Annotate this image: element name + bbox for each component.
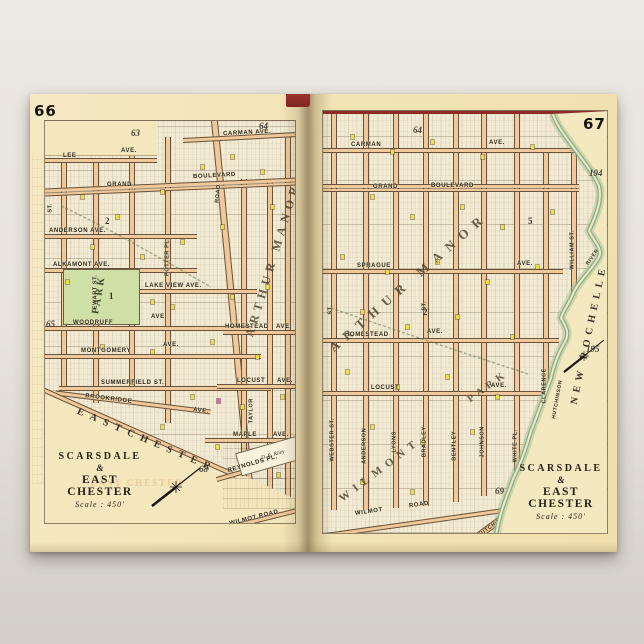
street-label-locust: LOCUST (371, 385, 399, 391)
street-label-grand: GRAND (107, 182, 132, 188)
building-marker (141, 255, 144, 259)
street-label-clarence: CLARENCE (542, 354, 548, 418)
street-label-st: ST. (48, 176, 54, 240)
street-label-ewart: EWART ST. (93, 260, 99, 324)
title-ampersand: & (51, 463, 149, 473)
street-label-bradley: BRADLEY (422, 410, 428, 474)
building-marker (161, 425, 164, 429)
page-margin-bleed (32, 154, 43, 484)
block-number: 2 (423, 307, 428, 317)
building-marker-brick (217, 399, 220, 403)
building-marker (241, 405, 244, 409)
street-label-sprague-ave: AVE. (517, 261, 533, 267)
map-plate-left: PARK 1 (44, 120, 296, 524)
building-marker (66, 280, 69, 284)
title-east-chester: EAST CHESTER (51, 474, 149, 498)
street-label-carman: CARMAN (351, 142, 381, 148)
building-marker (81, 195, 84, 199)
street-label-bentley: BENTLEY (452, 414, 458, 478)
plate-ref-64: 64 (259, 121, 268, 131)
title-ampersand: & (509, 475, 608, 485)
street-label-anderson: ANDERSON AVE. (49, 228, 106, 234)
building-marker (256, 355, 259, 359)
plate-ref-69: 69 (495, 486, 504, 496)
street-label-lyons: LYONS (392, 410, 398, 474)
title-scarsdale: SCARSDALE (509, 463, 608, 474)
street-label-anderson: ANDERSON (362, 414, 368, 478)
building-marker (261, 170, 264, 174)
building-marker (171, 305, 174, 309)
spine-red-edge (286, 94, 310, 107)
plate-ref-63: 63 (131, 128, 140, 138)
plate-ref-65: 65 (46, 319, 55, 329)
street-label-grand: GRAND (373, 184, 398, 190)
building-marker (216, 445, 219, 449)
street-label-st: ST. (422, 274, 428, 338)
page-number-right: 67 (583, 115, 606, 133)
street-label-lakeview: LAKE VIEW AVE. (145, 283, 202, 289)
street-label-maple-ave-left: AVE. (273, 432, 289, 438)
street-label-locust-ave: AVE. (491, 383, 507, 389)
page-number-left: 66 (34, 102, 57, 120)
building-marker (271, 205, 274, 209)
title-scale: Scale : 450' (509, 512, 608, 521)
street-label-homestead-left: HOMESTEAD (225, 324, 269, 330)
building-marker (151, 350, 154, 354)
street-label-homestead-ave-left: AVE. (276, 324, 292, 330)
street-label-homestead: HOMESTEAD (345, 332, 389, 338)
building-marker (231, 155, 234, 159)
map-sheet: PARK 1 (30, 94, 617, 552)
poster-background: PARK 1 (0, 0, 644, 644)
compass-icon (561, 337, 607, 375)
street-label-potter: POTTER PL. (165, 225, 171, 289)
street-label-sprague: SPRAGUE (357, 263, 391, 269)
street-label-johnson: JOHNSON (480, 410, 486, 474)
street-label-boulevard: BOULEVARD (431, 183, 474, 189)
building-marker (211, 340, 214, 344)
building-marker (231, 295, 234, 299)
street-label-montgomery: MONTGOMERY (81, 348, 131, 354)
street-label-webster: WEBSTER ST. (330, 408, 336, 472)
building-marker (181, 240, 184, 244)
building-marker (221, 225, 224, 229)
plate-ref-64: 64 (413, 125, 422, 135)
building-marker (151, 300, 154, 304)
street-label-montgomery-ave: AVE. (163, 342, 179, 348)
block-number: 2 (105, 216, 110, 226)
map-plate-right: ARTHUR MANOR PARK WILMONT HUTCHINSON BOU… (322, 110, 608, 534)
street-label-taylor: TAYLOR (249, 379, 255, 443)
building-marker (191, 395, 194, 399)
street-label-lee: LEE (63, 153, 76, 159)
plate-title-left: SCARSDALE & EAST CHESTER Scale : 450' (51, 451, 149, 509)
street-label-woodruff-ave: AVE. (151, 314, 167, 320)
building-marker (161, 190, 164, 194)
building-marker (91, 245, 94, 249)
street-label-locust-ave-left: AVE. (277, 378, 293, 384)
street-label-summerfield: SUMMERFIELD ST. (101, 380, 164, 386)
compass-icon (149, 465, 203, 509)
street-label-homestead-ave: AVE. (427, 329, 443, 335)
title-scale: Scale : 450' (51, 500, 149, 509)
plate-ref-194: 194 (589, 168, 603, 178)
block-number: 5 (528, 216, 533, 226)
title-east-chester: EAST CHESTER (509, 486, 608, 510)
building-marker (201, 165, 204, 169)
street-label-alkamont: ALKAMONT AVE. (53, 262, 110, 268)
street-label-carman-ave: AVE. (489, 140, 505, 146)
street-label-william: WILLIAM ST. (570, 218, 576, 282)
street-label-st: ST. (328, 278, 334, 342)
building-marker (116, 215, 119, 219)
title-scarsdale: SCARSDALE (51, 451, 149, 462)
building-marker (281, 395, 284, 399)
street-label-lee-ave: AVE. (121, 148, 137, 154)
plate-title-right: SCARSDALE & EAST CHESTER Scale : 450' (509, 463, 608, 521)
